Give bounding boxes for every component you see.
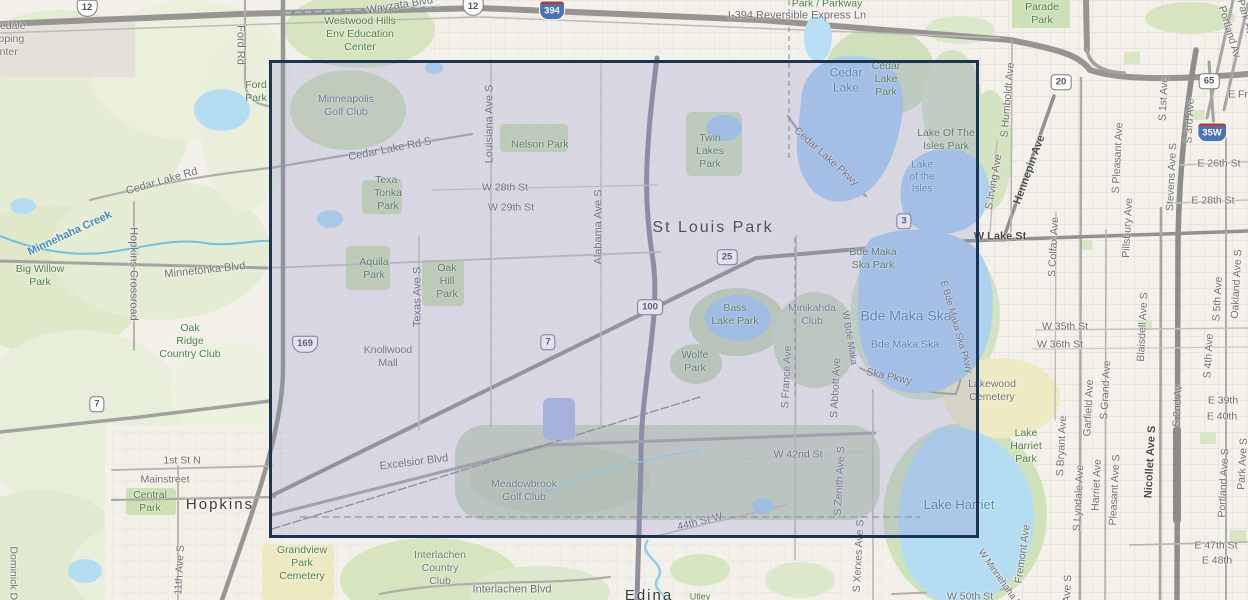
map-label-e-39th: E 39th	[1208, 395, 1238, 408]
map-label-w-minnehaha-pkwy: W Minnehaha Pkwy	[975, 547, 1033, 600]
map-label-ridgedale-shopping-center: Ridgedale Shopping Center	[0, 20, 26, 58]
map-label-i-394-reversible-express-ln: I-394 Reversible Express Ln	[728, 9, 866, 22]
map-label-pillsbury-ave: Pillsbury Ave	[1120, 198, 1136, 259]
map-label-s-5th-ave: S 5th Ave	[1210, 276, 1225, 321]
map-label-w-50th-st: W 50th St	[947, 591, 993, 600]
map-label-park-av: Park Av	[1234, 0, 1248, 36]
map-label-hennepin-ave: Hennepin Ave	[1011, 134, 1048, 207]
map-label-s-lyndale-ave: S Lyndale Ave	[1071, 464, 1087, 531]
map-label-cedar-lake-rd: Cedar Lake Rd	[125, 165, 200, 198]
map-label-harriet-ave: Harriet Ave	[1089, 459, 1104, 511]
map-label-park-parkway: Park / Parkway	[792, 0, 863, 10]
map-label-oak-ridge-country-club: Oak Ridge Country Club	[159, 322, 220, 360]
map-label-minnehaha-creek: Minnehaha Creek	[26, 209, 114, 260]
map-label-mainstreet: Mainstreet	[140, 474, 189, 487]
map-label-garfield-ave: Garfield Ave	[1081, 379, 1097, 437]
map-label-blaisdell-ave-s: Blaisdell Ave S	[1135, 292, 1151, 362]
map-label-portland-ave-s: Portland Ave S	[1216, 448, 1232, 518]
map-label-hopkins: Hopkins	[186, 496, 254, 514]
map-label-pleasant-ave-s: Pleasant Ave S	[1107, 454, 1123, 526]
map-label-s-1st-ave: S 1st Ave	[1156, 77, 1171, 122]
map-label-lake-harriet-park: Lake Harriet Park	[1010, 427, 1042, 465]
map-label-wayzata-blvd: Wayzata Blvd	[366, 0, 434, 18]
map-label-stevens-ave-s: Stevens Ave S	[1164, 143, 1180, 212]
map-label-central-park: Central Park	[133, 489, 167, 515]
map-label-hopkins-crossroad: Hopkins Crossroad	[126, 227, 139, 321]
map-label-westwood-hills-env-education-center: Westwood Hills Env Education Center	[324, 15, 396, 53]
map-label-11th-ave-s: 11th Ave S	[172, 545, 187, 595]
map-label-s-grand-ave: S Grand Ave	[1098, 360, 1114, 420]
map-label-e-48th: E 48th	[1202, 555, 1232, 568]
map-label-interlachen-blvd: Interlachen Blvd	[473, 583, 552, 596]
map-label-e-47th-st: E 47th St	[1194, 540, 1237, 553]
selection-extent[interactable]	[269, 60, 979, 538]
route-shield-7: 7	[89, 396, 104, 412]
map-label-portland-av: Portland Av	[1215, 5, 1243, 60]
map-label-minnetonka-blvd: Minnetonka Blvd	[164, 260, 246, 282]
map-label-grandview-park-cemetery: Grandview Park Cemetery	[277, 544, 327, 582]
map-canvas[interactable]: 121239416977100253206535WSt Louis ParkHo…	[0, 0, 1248, 600]
map-label-park-ave-s: Park Ave S	[1235, 438, 1248, 490]
map-label-nicollet-ave-s: Nicollet Ave S	[1142, 425, 1159, 498]
route-shield-20: 20	[1051, 74, 1072, 90]
map-label-s-4th-ave: S 4th Ave	[1201, 333, 1216, 378]
map-label-w-lake-st: W Lake St	[974, 230, 1027, 243]
map-label-parade-park: Parade Park	[1025, 1, 1059, 27]
map-label-edina: Edina	[625, 587, 673, 600]
route-shield-35w: 35W	[1198, 123, 1226, 141]
map-label-e-40th: E 40th	[1207, 411, 1237, 424]
map-label-e-26th-st: E 26th St	[1197, 158, 1240, 171]
map-label-fremont-ave: Fremont Ave	[1013, 524, 1034, 585]
map-label-s-bryant-ave: S Bryant Ave	[1054, 415, 1070, 476]
map-label-utley: Utley	[690, 592, 711, 600]
route-shield-65: 65	[1199, 73, 1220, 89]
map-label-s-3rd-ave: S 3rd Ave	[1182, 98, 1197, 144]
route-shield-12: 12	[463, 0, 484, 15]
map-label-1st-st-n: 1st St N	[163, 455, 200, 468]
map-label-ford-park: Ford Park	[245, 79, 267, 105]
map-label-w-36th-st: W 36th St	[1037, 339, 1083, 352]
map-label-interlachen-country-club: Interlachen Country Club	[414, 549, 466, 587]
route-shield-394: 394	[540, 1, 564, 19]
map-label-s-humboldt-ave: S Humboldt Ave	[998, 62, 1017, 138]
map-label-dominick-dr: Dominick Dr	[7, 546, 20, 600]
map-label-s-irving-ave: S Irving Ave	[983, 153, 1005, 210]
map-label-e-28th-st: E 28th St	[1191, 195, 1234, 208]
map-label-aldrich-ave-s: Aldrich Ave S	[1059, 575, 1075, 600]
map-label-s-2nd-av: S 2nd Av	[1171, 385, 1186, 427]
route-shield-12: 12	[77, 0, 98, 16]
map-label-w-35th-st: W 35th St	[1042, 321, 1088, 334]
map-label-ford-rd: Ford Rd	[233, 25, 246, 65]
map-label-oakland-ave-s: Oakland Ave S	[1229, 249, 1245, 319]
map-label-s-pleasant-ave: S Pleasant Ave	[1110, 122, 1126, 194]
map-label-s-colfax-ave: S Colfax Ave	[1046, 217, 1062, 278]
map-label-big-willow-park: Big Willow Park	[16, 263, 64, 289]
map-label-e-fr: E Fr	[1228, 89, 1248, 102]
